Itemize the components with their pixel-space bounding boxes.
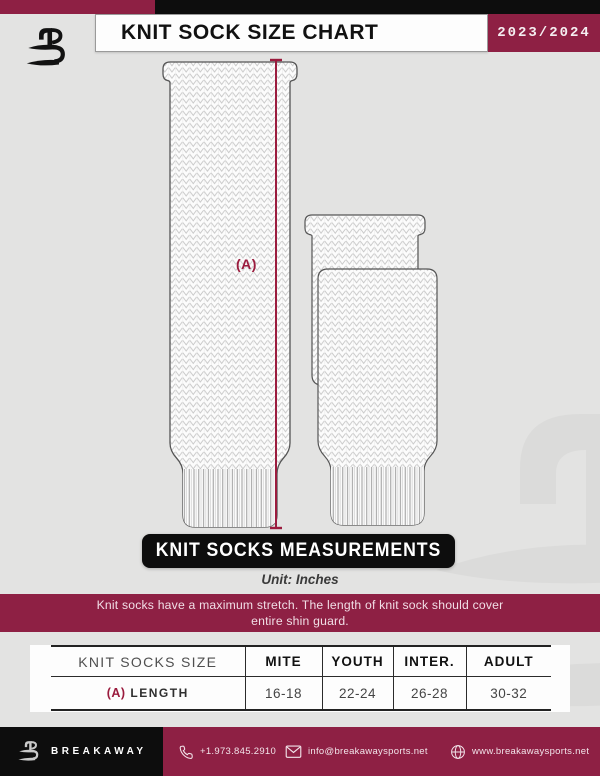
email-text: info@breakawaysports.net <box>308 746 428 757</box>
page: KNIT SOCK SIZE CHART 2023/2024 <box>0 0 600 776</box>
season-text: 2023/2024 <box>497 25 591 41</box>
top-strip-accent <box>0 0 155 14</box>
footer-brand-block: BREAKAWAY <box>0 727 163 776</box>
footer-contact-bar: +1.973.845.2910 info@breakawaysports.net… <box>163 727 600 776</box>
footer: BREAKAWAY +1.973.845.2910 info@breakaway… <box>0 727 600 776</box>
measurement-label-a: (A) <box>236 256 257 272</box>
cell-length-mite: 16-18 <box>245 677 322 711</box>
email-link[interactable]: info@breakawaysports.net <box>285 727 428 776</box>
cell-length-inter: 26-28 <box>393 677 466 711</box>
row-label-length: (A) LENGTH <box>51 677 245 711</box>
brand-wordmark: BREAKAWAY <box>51 746 147 757</box>
email-icon <box>285 745 302 759</box>
unit-text: Unit: Inches <box>0 572 600 587</box>
season-badge: 2023/2024 <box>488 14 600 52</box>
sock-front-small <box>318 269 437 525</box>
col-header-youth: YOUTH <box>322 646 393 677</box>
row-label-a-prefix: (A) <box>107 686 126 700</box>
size-table: KNIT SOCKS SIZE MITE YOUTH INTER. ADULT … <box>30 645 570 712</box>
page-title: KNIT SOCK SIZE CHART <box>121 21 378 45</box>
note-banner: Knit socks have a maximum stretch. The l… <box>0 594 600 632</box>
col-header-adult: ADULT <box>466 646 551 677</box>
website-link[interactable]: www.breakawaysports.net <box>450 727 589 776</box>
top-strip-black <box>155 0 600 14</box>
size-table-length-row: (A) LENGTH 16-18 22-24 26-28 30-32 <box>51 677 551 711</box>
globe-icon <box>450 744 466 760</box>
cell-length-adult: 30-32 <box>466 677 551 711</box>
measurements-banner: KNIT SOCKS MEASUREMENTS <box>142 534 455 568</box>
cell-length-youth: 22-24 <box>322 677 393 711</box>
note-line-1: Knit socks have a maximum stretch. The l… <box>97 597 504 614</box>
phone-link[interactable]: +1.973.845.2910 <box>178 727 276 776</box>
sock-diagram <box>140 55 460 535</box>
breakaway-logo-icon <box>26 21 72 75</box>
title-bar: KNIT SOCK SIZE CHART <box>95 14 488 52</box>
size-table-grid: KNIT SOCKS SIZE MITE YOUTH INTER. ADULT … <box>51 645 551 711</box>
size-table-header-row: KNIT SOCKS SIZE MITE YOUTH INTER. ADULT <box>51 646 551 677</box>
row-label-text: LENGTH <box>130 686 188 700</box>
note-line-2: entire shin guard. <box>251 613 349 630</box>
col-header-inter: INTER. <box>393 646 466 677</box>
phone-text: +1.973.845.2910 <box>200 746 276 757</box>
measurements-banner-text: KNIT SOCKS MEASUREMENTS <box>156 540 441 562</box>
website-text: www.breakawaysports.net <box>472 746 589 757</box>
breakaway-logo-small-icon <box>18 738 42 765</box>
phone-icon <box>178 744 194 760</box>
col-header-size: KNIT SOCKS SIZE <box>51 646 245 677</box>
col-header-mite: MITE <box>245 646 322 677</box>
